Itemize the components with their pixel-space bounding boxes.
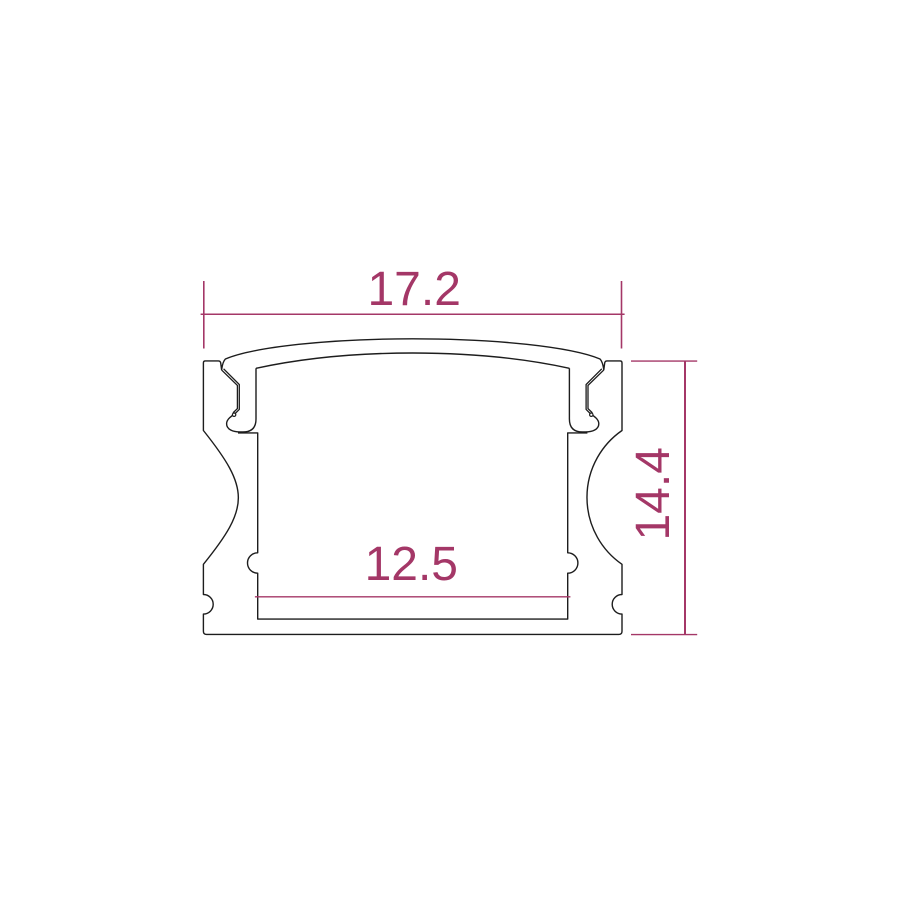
svg-text:17.2: 17.2 [367,263,460,316]
svg-text:14.4: 14.4 [627,447,680,540]
svg-text:12.5: 12.5 [365,538,458,591]
